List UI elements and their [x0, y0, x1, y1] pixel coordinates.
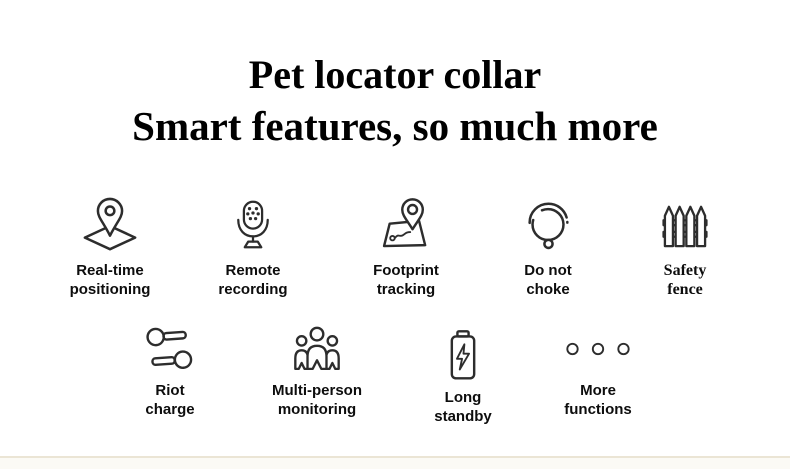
feature-multi-person-monitoring: Multi-person monitoring	[247, 320, 387, 419]
title-line-2: Smart features, so much more	[0, 100, 790, 152]
collar-icon	[519, 194, 577, 258]
feature-safety-fence: Safety fence	[615, 194, 755, 299]
title-line-1: Pet locator collar	[0, 50, 790, 100]
feature-riot-charge: Riot charge	[100, 320, 240, 419]
features-row-1: Real-time positioning Remote re	[0, 194, 790, 304]
features-row-2: Riot charge Multi-person monitoring	[0, 320, 790, 430]
feature-remote-recording: Remote recording	[183, 194, 323, 299]
feature-long-standby: Long standby	[393, 327, 533, 426]
feature-label: Footprint tracking	[373, 261, 439, 299]
multi-person-icon	[289, 320, 345, 378]
riot-charge-icon	[142, 320, 198, 378]
infographic-canvas: Pet locator collar Smart features, so mu…	[0, 0, 790, 469]
page-title: Pet locator collar Smart features, so mu…	[0, 50, 790, 152]
feature-label: Long standby	[434, 388, 492, 426]
feature-label: Safety fence	[664, 261, 707, 299]
feature-label: Multi-person monitoring	[272, 381, 362, 419]
feature-label: Real-time positioning	[70, 261, 151, 299]
battery-icon	[440, 327, 486, 385]
ellipsis-icon	[564, 320, 632, 378]
feature-label: Remote recording	[218, 261, 287, 299]
feature-footprint-tracking: Footprint tracking	[336, 194, 476, 299]
microphone-icon	[227, 194, 279, 258]
feature-label: More functions	[564, 381, 632, 419]
feature-more-functions: More functions	[528, 320, 668, 419]
feature-label: Riot charge	[145, 381, 194, 419]
map-pin-icon	[79, 194, 141, 258]
feature-label: Do not choke	[524, 261, 571, 299]
bottom-accent-strip	[0, 456, 790, 469]
feature-real-time-positioning: Real-time positioning	[40, 194, 180, 299]
fence-icon	[660, 194, 710, 258]
map-route-icon	[377, 194, 435, 258]
feature-do-not-choke: Do not choke	[478, 194, 618, 299]
